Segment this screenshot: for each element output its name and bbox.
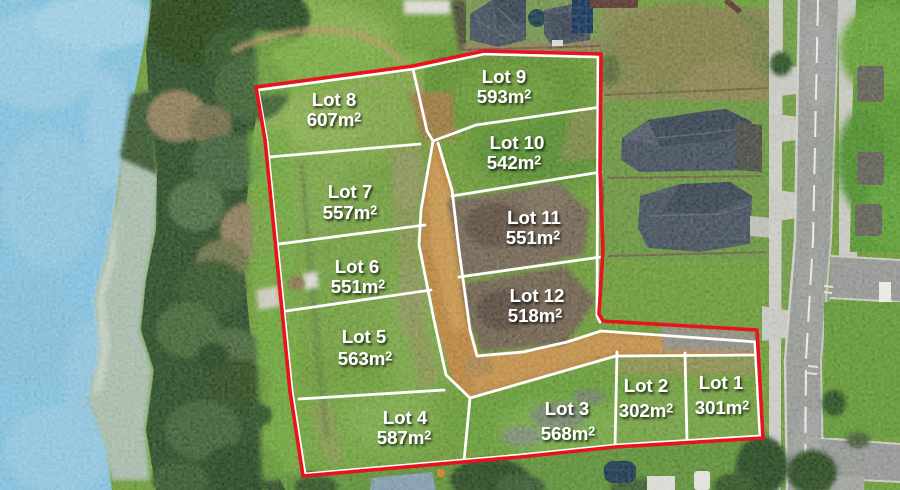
svg-text:Lot 7: Lot 7 — [328, 181, 372, 202]
svg-text:607m2: 607m2 — [307, 109, 362, 130]
svg-text:Lot 10: Lot 10 — [490, 132, 545, 153]
svg-text:Lot 5: Lot 5 — [342, 326, 386, 347]
svg-text:Lot 1: Lot 1 — [699, 372, 743, 393]
svg-text:Lot 12: Lot 12 — [510, 285, 565, 306]
svg-text:551m2: 551m2 — [506, 227, 561, 248]
svg-text:Lot 3: Lot 3 — [545, 398, 589, 419]
svg-text:587m2: 587m2 — [377, 427, 432, 448]
svg-text:563m2: 563m2 — [338, 348, 393, 369]
svg-text:301m2: 301m2 — [695, 397, 750, 418]
svg-text:Lot 4: Lot 4 — [383, 407, 428, 428]
svg-text:302m2: 302m2 — [619, 400, 674, 421]
svg-text:Lot 11: Lot 11 — [507, 207, 561, 228]
svg-text:Lot 2: Lot 2 — [624, 375, 668, 396]
svg-text:Lot 6: Lot 6 — [335, 256, 379, 277]
svg-text:557m2: 557m2 — [323, 202, 378, 223]
svg-text:Lot 9: Lot 9 — [482, 66, 526, 87]
svg-text:Lot 8: Lot 8 — [312, 89, 356, 110]
svg-text:593m2: 593m2 — [477, 86, 532, 107]
svg-text:518m2: 518m2 — [508, 305, 563, 326]
svg-text:551m2: 551m2 — [331, 276, 386, 297]
svg-text:542m2: 542m2 — [487, 152, 542, 173]
svg-text:568m2: 568m2 — [541, 423, 596, 444]
